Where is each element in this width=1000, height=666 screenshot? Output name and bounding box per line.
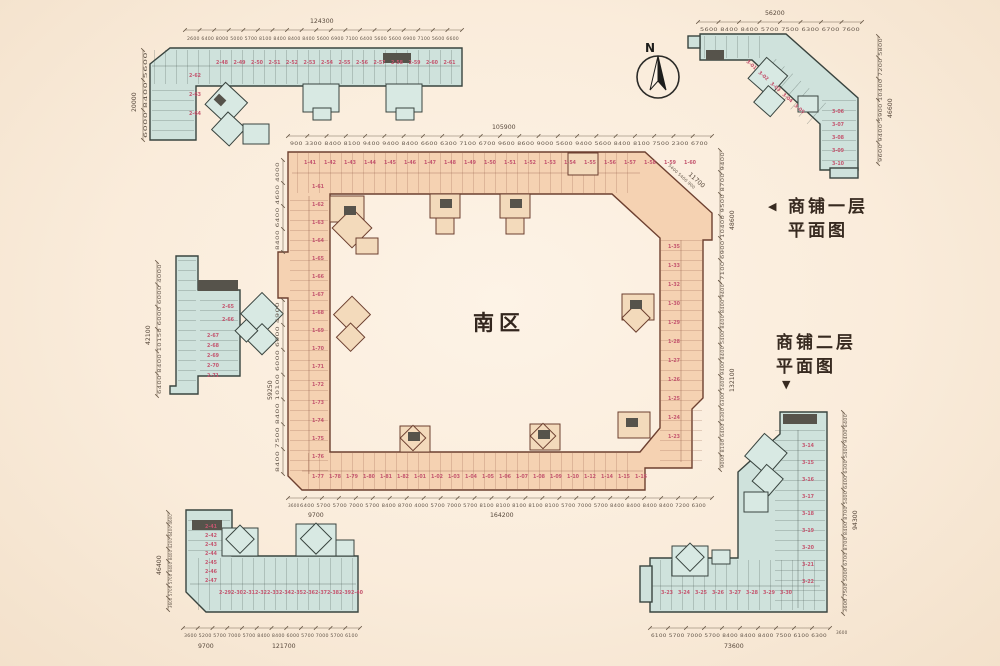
unit-number: 1-69 [312,328,325,334]
stair-tower [196,82,422,146]
unit-number: 1-26 [668,377,681,383]
down-arrow-icon: ▼ [782,378,791,391]
unit-number: 2-44 [205,551,218,557]
svg-text:121700: 121700 [272,643,296,650]
unit-number: 3-17 [802,494,814,500]
svg-text:N: N [645,41,655,55]
unit-number: 2-53 [304,60,316,66]
unit-number: 2-30 [231,590,244,596]
unit-number: 1-12 [584,474,596,480]
unit-number: 2-34 [279,590,292,596]
unit-number: 3-19 [802,528,815,534]
unit-number: 1-78 [329,474,342,480]
unit-number: 2-55 [339,60,351,66]
unit-number: 2-51 [269,60,281,66]
svg-text:3600: 3600 [288,503,300,508]
unit-number: 3-23 [661,590,673,596]
svg-text:8400 6400 4600 4000: 8400 6400 4600 4000 [275,162,280,250]
stair-tower [222,523,354,556]
unit-number: 2-45 [205,560,217,566]
north-arrow-icon: N [637,41,679,98]
unit-number: 1-67 [312,292,324,298]
unit-number: 1-43 [344,160,356,166]
unit-number: 3-08 [832,135,845,141]
unit-number: 1-01 [414,474,426,480]
svg-text:3600: 3600 [836,630,848,635]
unit-number: 1-77 [312,474,324,480]
unit-number: 2-32 [255,590,267,596]
unit-number: 1-74 [312,418,325,424]
unit-number: 1-33 [668,263,680,269]
unit-number: 1-23 [668,434,680,440]
unit-number: 1-82 [397,474,409,480]
unit-number: 2-71 [207,373,219,379]
dim-ring-right-lower: 9000 8100 6400 6300 6300 5400 9400 8400 … [718,280,736,472]
unit-number: 1-65 [312,256,324,262]
unit-number: 1-45 [384,160,396,166]
unit-number: 3-10 [832,161,845,167]
unit-number: 2-68 [207,343,220,349]
unit-number: 2-38 [327,590,340,596]
svg-text:48600: 48600 [729,210,736,230]
dim-ring-top: 900 3300 8400 8100 9400 9400 8400 6600 6… [286,124,714,146]
unit-number: 1-61 [312,184,324,190]
svg-text:132100: 132100 [729,368,736,392]
unit-number: 2-39 [339,590,352,596]
unit-number: 2-57 [374,60,386,66]
svg-text:平面图: 平面图 [788,221,848,241]
dim-top-building-top: 2600 6400 8000 5000 5700 8100 8400 8400 … [183,18,464,41]
floor-plan-page: 2-482-492-502-512-522-532-542-552-562-57… [0,0,1000,666]
unit-number: 1-80 [363,474,376,480]
unit-number: 1-47 [424,160,436,166]
unit-number: 3-14 [802,443,815,449]
unit-number: 2-35 [291,590,303,596]
svg-text:94300: 94300 [852,510,859,530]
unit-number: 2-56 [356,60,369,66]
svg-text:56200: 56200 [765,10,785,17]
stair-tower [324,153,654,452]
unit-number: 1-81 [380,474,392,480]
dim-bottom-right-right: 3600 7500 5000 6700 8700 8400 8700 5400 … [841,410,859,616]
svg-text:900 3300 8400 8100 9400 9400 8: 900 3300 8400 8100 9400 9400 8400 6600 6… [290,141,708,146]
unit-number: 1-73 [312,400,324,406]
unit-number: 1-57 [624,160,636,166]
unit-number: 2-31 [243,590,255,596]
unit-number: 2-40 [351,590,364,596]
unit-number: 1-42 [324,160,336,166]
unit-number: 3-18 [802,511,815,517]
unit-number: 3-21 [802,562,814,568]
unit-number: 1-50 [484,160,497,166]
unit-number: 1-14 [601,474,614,480]
unit-number: 2-70 [207,363,220,369]
unit-number: 2-46 [205,569,218,575]
unit-number: 2-49 [234,60,247,66]
svg-text:124300: 124300 [310,18,334,25]
unit-number: 1-70 [312,346,325,352]
unit-number: 2-60 [426,60,439,66]
svg-text:3600 5200 5700 7000 5700 8400: 3600 5200 5700 7000 5700 8400 8400 6000 … [184,633,358,638]
unit-number: 1-51 [504,160,516,166]
unit-number: 3-06 [832,109,845,115]
unit-number: 2-41 [205,524,217,530]
unit-number: 1-54 [564,160,577,166]
unit-number: 2-63 [189,92,201,98]
unit-number: 2-64 [189,111,202,117]
unit-number: 2-42 [205,533,217,539]
unit-number: 3-25 [695,590,707,596]
unit-number: 1-08 [533,474,546,480]
unit-number: 1-07 [516,474,528,480]
svg-text:9000 8100 6400 6300 6300 5400: 9000 8100 6400 6300 6300 5400 9400 8400 … [720,284,725,468]
unit-number: 1-03 [448,474,460,480]
unit-number: 3-15 [802,460,814,466]
unit-number: 2-59 [409,60,422,66]
left-arrow-icon: ◀ [768,200,777,213]
building-top-shops: 2-482-492-502-512-522-532-542-552-562-57… [150,48,462,146]
floor-plan-canvas: 2-482-492-502-512-522-532-542-552-562-57… [0,0,1000,666]
unit-number: 3-07 [832,122,844,128]
svg-text:42100: 42100 [145,325,152,345]
svg-text:9700: 9700 [308,512,324,519]
unit-number: 1-04 [465,474,478,480]
unit-number: 2-58 [391,60,404,66]
svg-text:59250: 59250 [267,380,274,400]
dim-ring-bottom: 6400 5700 5700 7000 5700 8400 8700 4000 … [286,496,714,519]
unit-number: 1-76 [312,454,325,460]
svg-text:46400: 46400 [156,555,163,575]
svg-text:9700: 9700 [198,643,214,650]
unit-number: 1-06 [499,474,512,480]
unit-number: 1-48 [444,160,457,166]
svg-text:73600: 73600 [724,643,744,650]
dim-bottom-right-bottom: 6100 5700 7000 5700 8400 8400 8400 7500 … [648,626,847,650]
unit-number: 1-44 [364,160,377,166]
unit-number: 2-67 [207,333,219,339]
unit-number: 3-22 [802,579,814,585]
legend-second-floor: 商铺二层 平面图 ▼ [776,332,856,391]
unit-number: 3-30 [780,590,793,596]
legend-first-floor: ◀ 商铺一层 平面图 [768,196,868,241]
unit-number: 3-16 [802,477,815,483]
unit-number: 2-54 [321,60,334,66]
unit-number: 1-72 [312,382,324,388]
unit-number: 2-62 [189,73,201,79]
unit-number: 1-32 [668,282,680,288]
svg-text:20000: 20000 [131,92,138,112]
svg-text:6400 5700 5700 7000 5700 8400: 6400 5700 5700 7000 5700 8400 8700 4000 … [300,503,706,508]
unit-number: 1-62 [312,202,324,208]
unit-number: 1-66 [312,274,325,280]
unit-number: 1-16 [635,474,648,480]
dim-ring-right-upper: 7100 6900 10400 9500 8700 9400 48600 [718,148,736,284]
dim-top-right-top: 5600 8400 8400 5700 7500 6300 6700 7600 … [696,10,864,32]
unit-number: 1-68 [312,310,325,316]
unit-number: 3-27 [729,590,741,596]
unit-number: 1-24 [668,415,681,421]
unit-number: 1-30 [668,301,681,307]
unit-number: 2-69 [207,353,220,359]
unit-number: 3-28 [746,590,759,596]
dim-top-right-right: 9600 9400 5900 10400 7200 5800 46600 [876,34,894,166]
unit-row: 2-292-302-312-322-332-342-352-362-372-38… [219,590,364,596]
building-bottom-left-shops: 2-412-422-432-442-452-462-47 2-292-302-3… [186,510,364,612]
unit-number: 2-37 [315,590,327,596]
unit-number: 2-52 [286,60,298,66]
unit-number: 2-66 [222,317,235,323]
unit-number: 1-58 [644,160,657,166]
unit-number: 2-33 [267,590,279,596]
unit-number: 2-65 [222,304,234,310]
unit-number: 1-35 [668,244,680,250]
unit-number: 3-20 [802,545,815,551]
unit-number: 1-29 [668,320,681,326]
unit-number: 1-02 [431,474,443,480]
unit-number: 1-28 [668,339,681,345]
unit-number: 1-27 [668,358,680,364]
svg-text:5600 8400 8400 5700 7500 6300: 5600 8400 8400 5700 7500 6300 6700 7600 [700,27,860,32]
unit-number: 1-64 [312,238,325,244]
svg-text:商铺二层: 商铺二层 [776,332,856,353]
unit-number: 1-41 [304,160,316,166]
unit-number: 1-15 [618,474,630,480]
dim-bottom-left-left: 3600 5700 5700 8400 8400 4200 6400 4600 … [156,510,173,612]
unit-number: 1-79 [346,474,359,480]
svg-text:3600 5700 5700 8400 8400 4200: 3600 5700 5700 8400 8400 4200 6400 4600 [168,514,173,608]
area-label: 南区 [473,311,525,335]
dim-ring-left-upper: 8400 6400 4600 4000 [275,158,285,254]
unit-number: 1-09 [550,474,563,480]
unit-number: 3-26 [712,590,725,596]
unit-number: 3-09 [832,148,845,154]
svg-text:商铺一层: 商铺一层 [788,196,868,217]
unit-number: 2-48 [216,60,229,66]
unit-number: 2-50 [251,60,264,66]
unit-number: 1-49 [464,160,477,166]
unit-col: 3-143-153-163-173-183-193-203-213-22 [802,443,815,585]
svg-text:105900: 105900 [492,124,516,131]
unit-number: 1-60 [684,160,697,166]
unit-number: 1-63 [312,220,324,226]
unit-number: 2-29 [219,590,232,596]
unit-number: 1-52 [524,160,536,166]
unit-number: 3-29 [763,590,776,596]
unit-number: 1-55 [584,160,596,166]
unit-number: 1-10 [567,474,580,480]
unit-number: 2-43 [205,542,217,548]
svg-text:6000 8400 5600: 6000 8400 5600 [143,52,148,138]
svg-text:46600: 46600 [887,98,894,118]
unit-number: 2-47 [205,578,217,584]
unit-number: 1-25 [668,396,680,402]
dim-bottom-left-bottom: 3600 5200 5700 7000 5700 8400 8400 6000 … [181,626,362,650]
unit-number: 1-53 [544,160,556,166]
svg-text:164200: 164200 [490,512,514,519]
unit-number: 1-46 [404,160,417,166]
svg-text:平面图: 平面图 [776,357,836,377]
unit-number: 1-56 [604,160,617,166]
unit-number: 1-05 [482,474,494,480]
svg-text:2600 6400 8000 5000 5700 8100: 2600 6400 8000 5000 5700 8100 8400 8400 … [187,36,459,41]
unit-number: 1-71 [312,364,324,370]
svg-text:6100 5700 7000 5700 8400 8400: 6100 5700 7000 5700 8400 8400 8400 7500 … [651,633,827,638]
unit-number: 3-24 [678,590,691,596]
dim-left-building-left: 6400 8400 10150 6000 6000 4000 42100 [145,260,162,398]
unit-number: 2-61 [444,60,456,66]
unit-number: 1-75 [312,436,324,442]
building-top-right-shops: 3-013-023-033-043-05 3-063-073-083-093-1… [688,34,858,178]
dim-top-building-left: 6000 8400 5600 20000 [131,48,148,142]
unit-number: 2-36 [303,590,316,596]
svg-text:8400 7500 8400 10100 6000 6000: 8400 7500 8400 10100 6000 6000 4900 [275,302,280,472]
